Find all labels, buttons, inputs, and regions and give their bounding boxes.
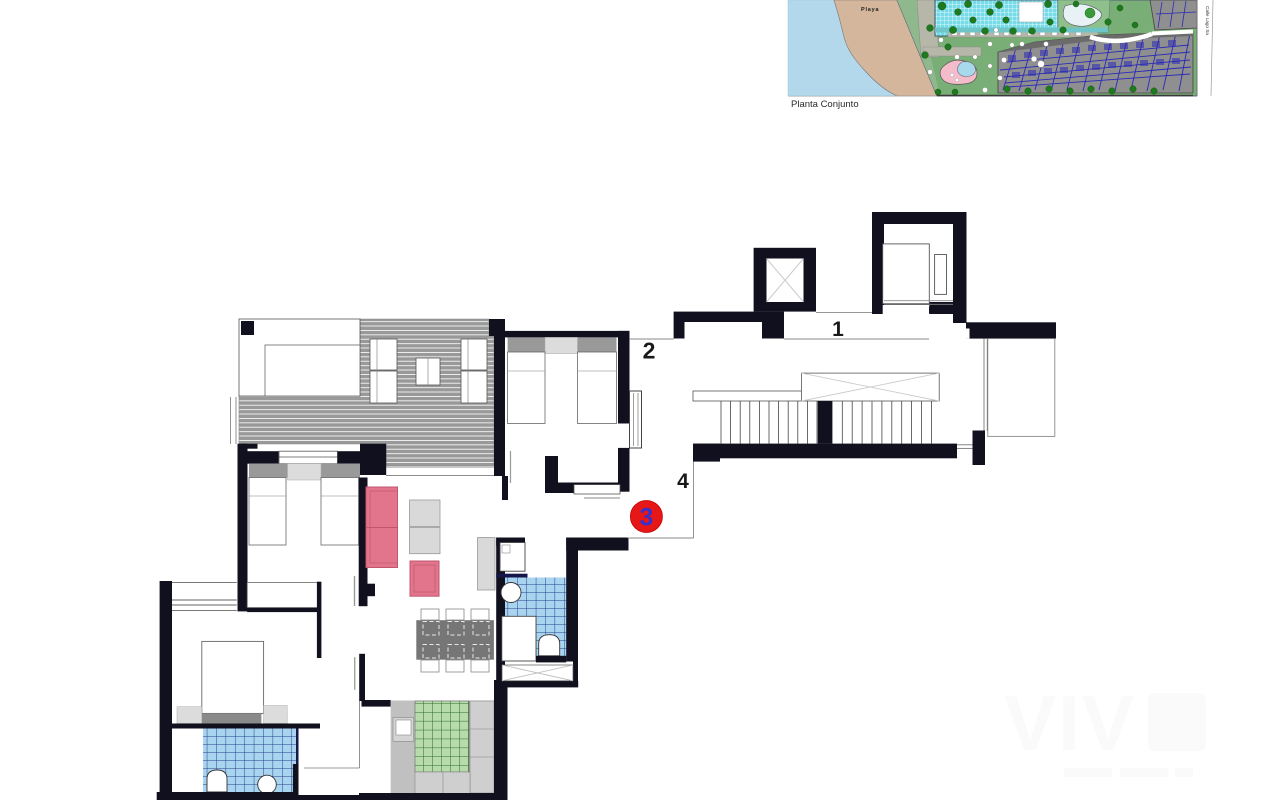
svg-text:Planta Conjunto: Planta Conjunto <box>791 99 859 110</box>
svg-text:Playa: Playa <box>861 7 880 13</box>
svg-text:4: 4 <box>677 470 689 493</box>
svg-text:VIV: VIV <box>1004 679 1136 767</box>
svg-text:3: 3 <box>639 504 653 532</box>
svg-text:2: 2 <box>643 338 656 364</box>
svg-text:Calle Lago Sa: Calle Lago Sa <box>1205 6 1210 35</box>
svg-text:1: 1 <box>832 318 844 341</box>
